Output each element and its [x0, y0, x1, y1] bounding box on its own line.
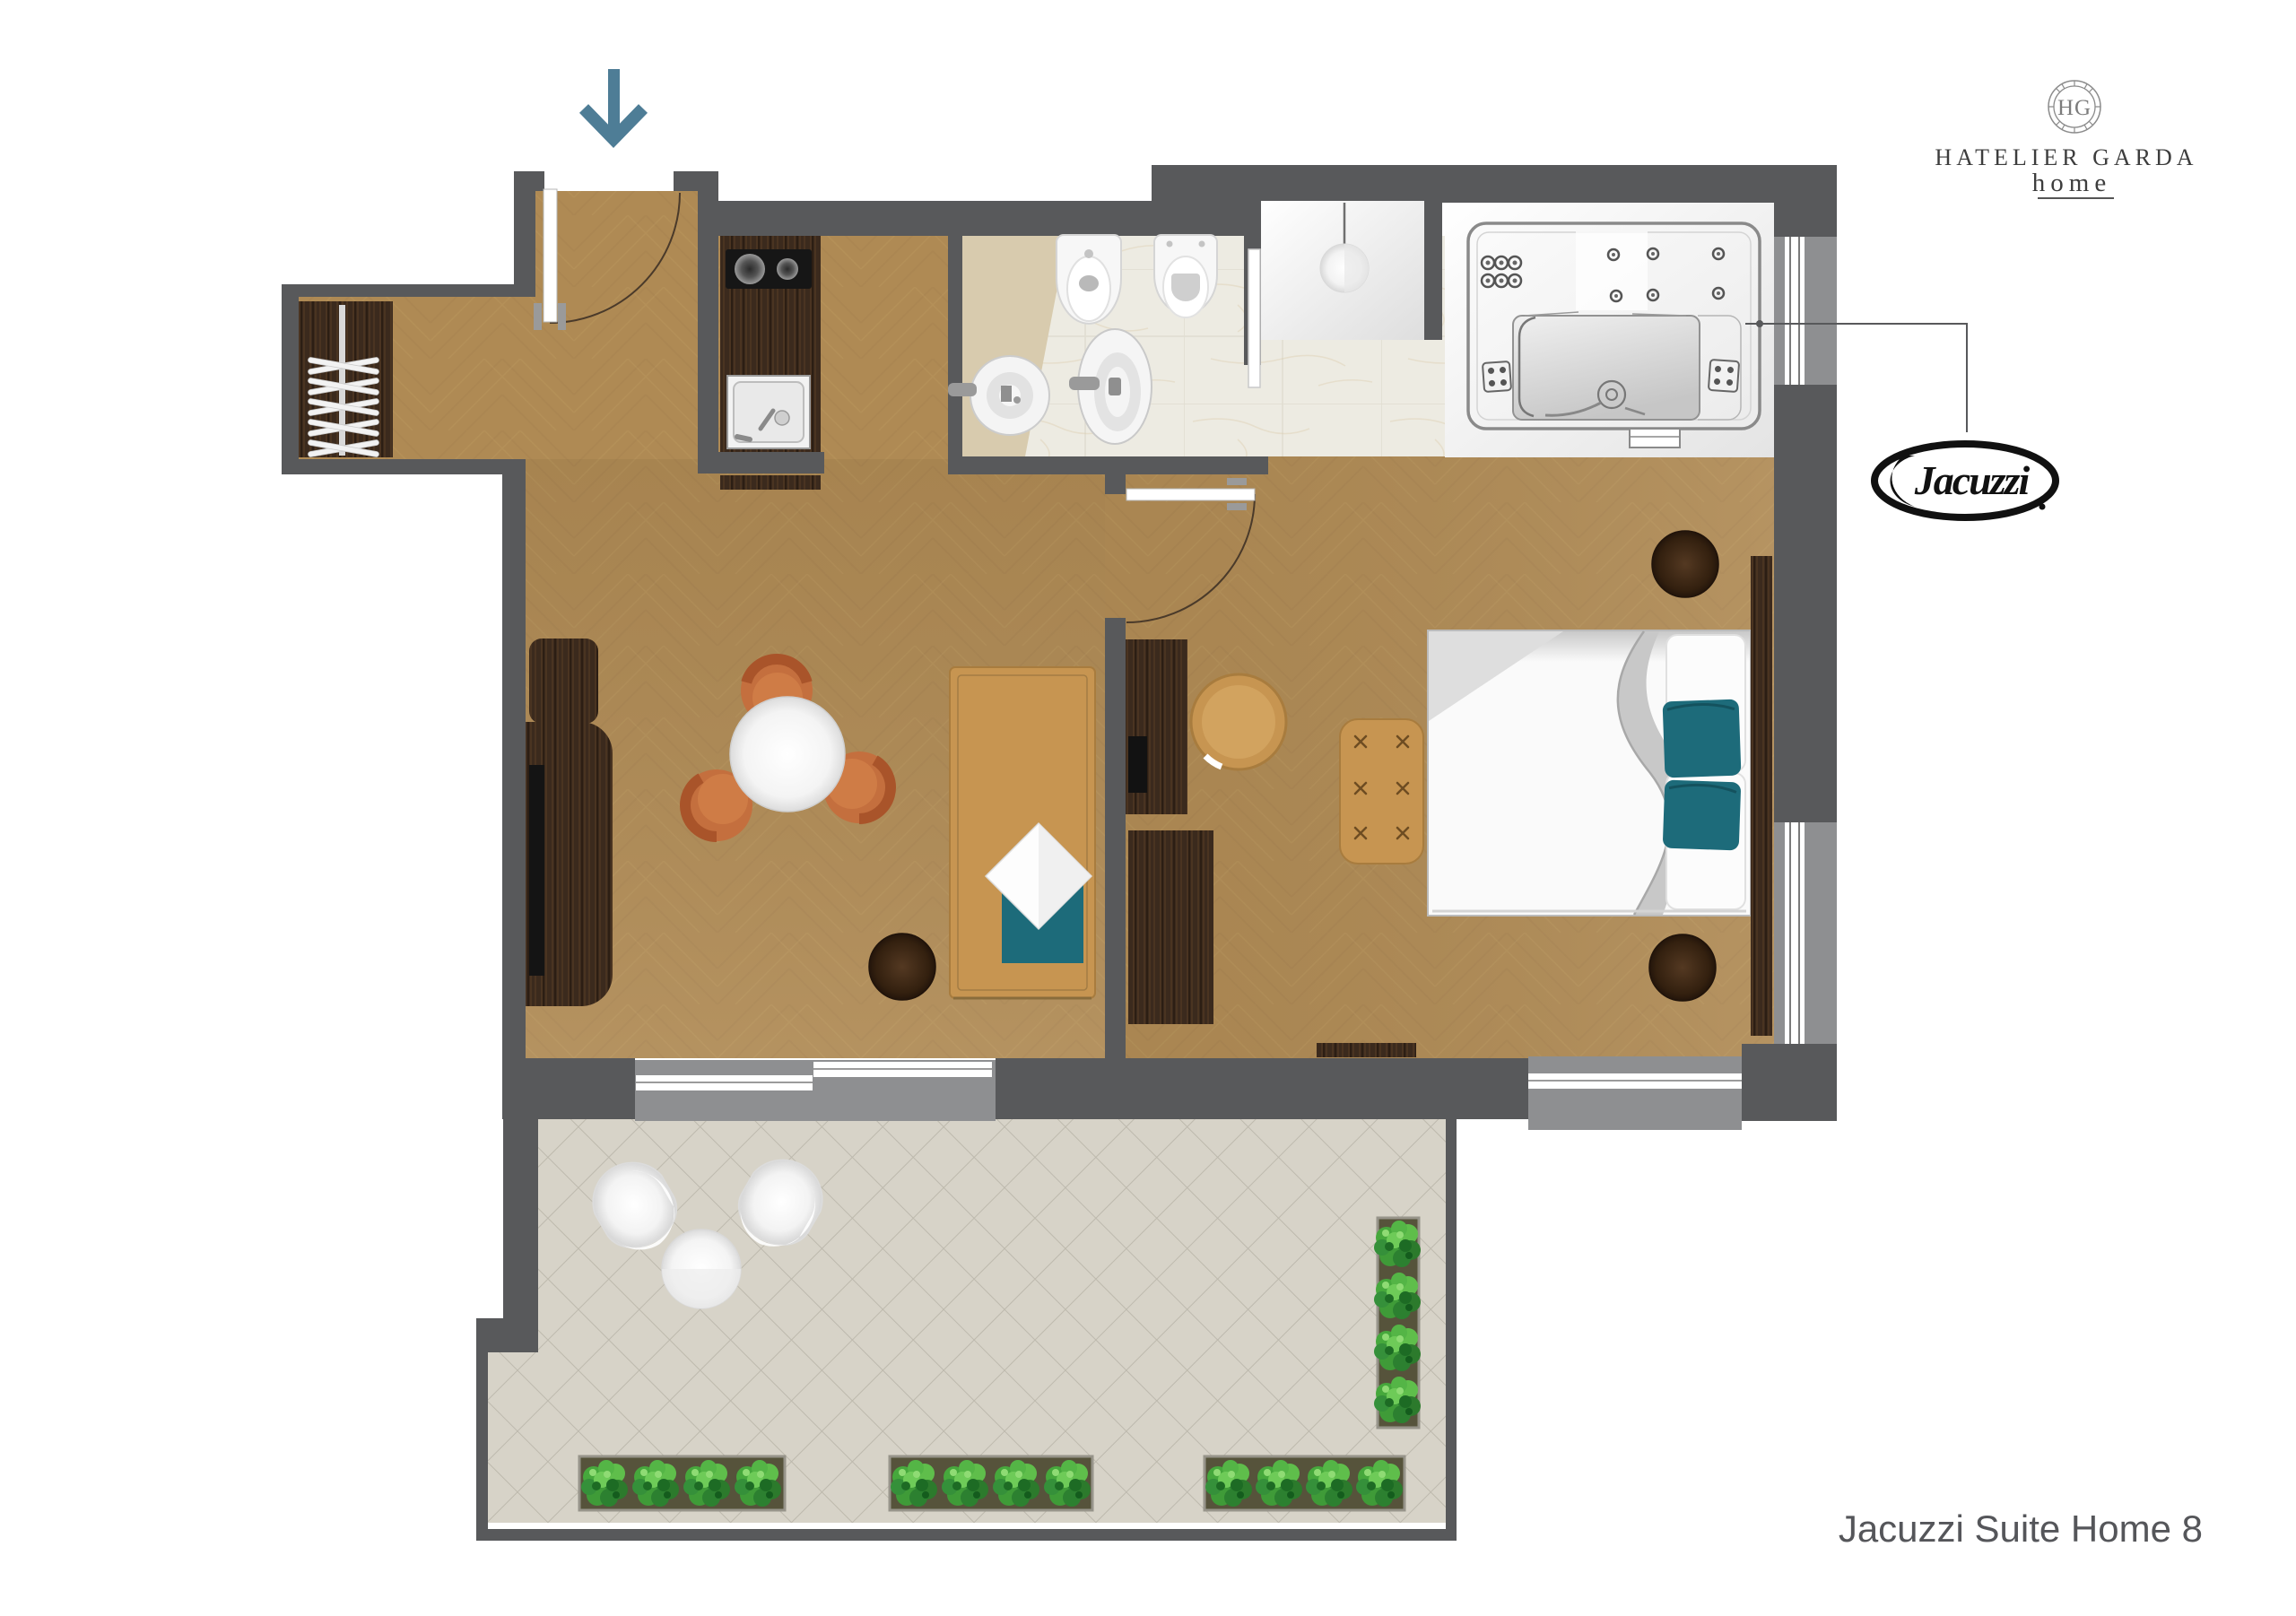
svg-text:Jacuzzi Suite Home 8: Jacuzzi Suite Home 8 — [1839, 1507, 2203, 1550]
svg-text:Jacuzzi: Jacuzzi — [1914, 457, 2031, 503]
svg-text:HG: HG — [2057, 96, 2092, 120]
svg-text:home: home — [2032, 169, 2111, 197]
svg-text:HATELIER GARDA: HATELIER GARDA — [1935, 144, 2197, 170]
